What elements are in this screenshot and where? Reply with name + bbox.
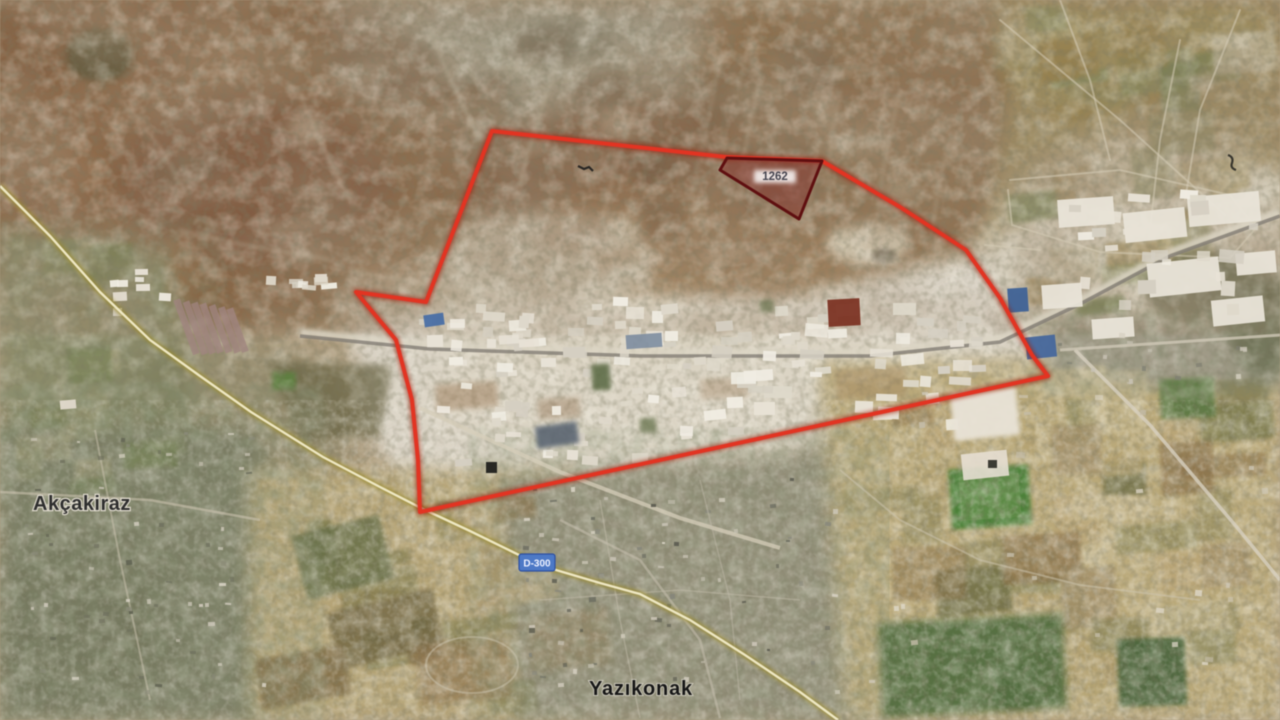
svg-text:D-300: D-300 xyxy=(523,559,551,570)
svg-text:Akçakiraz: Akçakiraz xyxy=(33,493,131,515)
svg-text:1262: 1262 xyxy=(762,171,788,183)
svg-text:Yazıkonak: Yazıkonak xyxy=(589,678,693,700)
